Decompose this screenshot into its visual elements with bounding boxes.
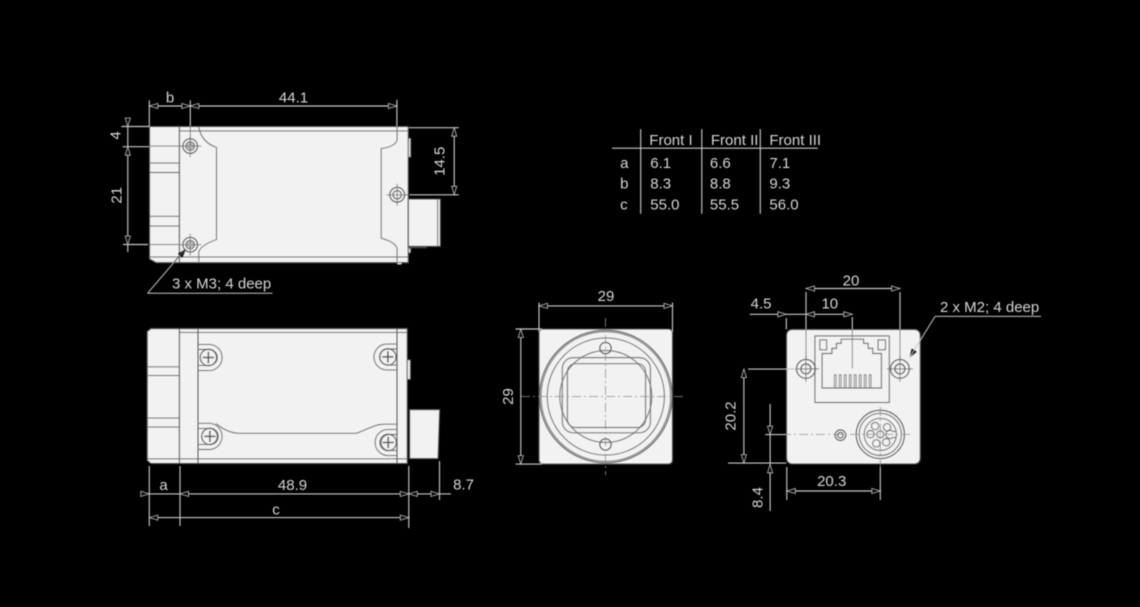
svg-text:7.1: 7.1 [769, 155, 790, 172]
svg-text:b: b [620, 176, 628, 193]
svg-text:3 x M3; 4 deep: 3 x M3; 4 deep [172, 276, 271, 293]
svg-text:c: c [272, 502, 280, 519]
svg-text:21: 21 [109, 187, 126, 204]
svg-text:55.0: 55.0 [650, 197, 679, 214]
svg-text:c: c [620, 197, 628, 214]
svg-text:29: 29 [500, 388, 517, 405]
svg-text:8.3: 8.3 [650, 176, 671, 193]
svg-text:10: 10 [821, 296, 838, 313]
svg-text:8.7: 8.7 [453, 477, 474, 494]
svg-text:20.2: 20.2 [723, 401, 740, 430]
svg-text:29: 29 [598, 288, 615, 305]
svg-text:8.8: 8.8 [710, 176, 731, 193]
svg-text:6.6: 6.6 [710, 155, 731, 172]
svg-text:2 x M2; 4 deep: 2 x M2; 4 deep [940, 299, 1039, 316]
svg-text:56.0: 56.0 [769, 197, 798, 214]
svg-text:9.3: 9.3 [769, 176, 790, 193]
svg-text:6.1: 6.1 [650, 155, 671, 172]
svg-text:Front I: Front I [649, 132, 692, 149]
svg-text:44.1: 44.1 [279, 89, 308, 106]
svg-text:Front III: Front III [769, 132, 821, 149]
svg-text:4: 4 [108, 131, 125, 139]
svg-text:a: a [159, 477, 168, 494]
svg-text:14.5: 14.5 [432, 147, 449, 176]
svg-text:a: a [620, 155, 629, 172]
svg-text:4.5: 4.5 [751, 296, 772, 313]
svg-text:8.4: 8.4 [750, 487, 767, 508]
svg-text:48.9: 48.9 [278, 477, 307, 494]
svg-text:20.3: 20.3 [817, 473, 846, 490]
svg-text:55.5: 55.5 [710, 197, 739, 214]
svg-text:Front II: Front II [711, 132, 759, 149]
svg-text:b: b [166, 89, 174, 106]
svg-text:20: 20 [843, 273, 860, 290]
